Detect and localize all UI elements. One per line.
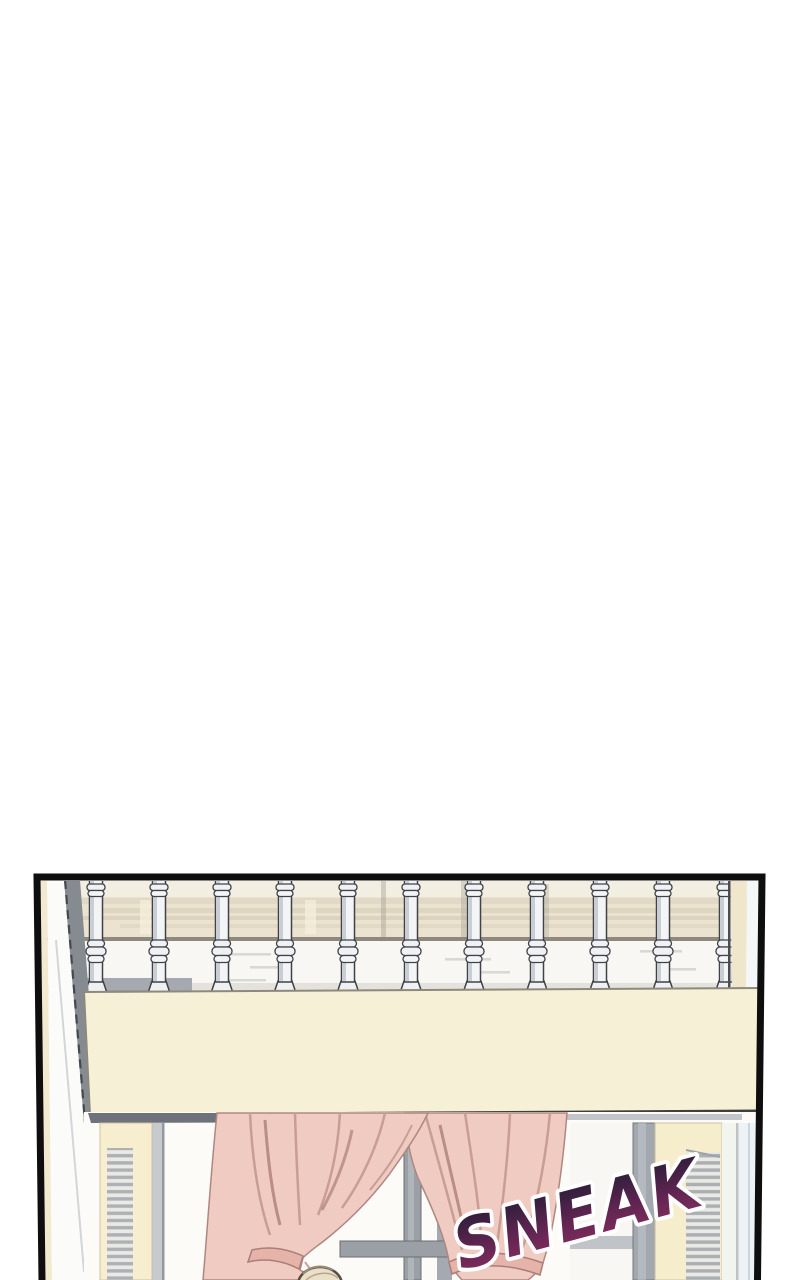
webtoon-page: SNEAK [0,0,800,1280]
right-corner-post [728,880,760,995]
comic-panel: SNEAK [0,0,800,1280]
balcony-beam [84,988,762,1115]
left-shutter [100,1123,165,1280]
